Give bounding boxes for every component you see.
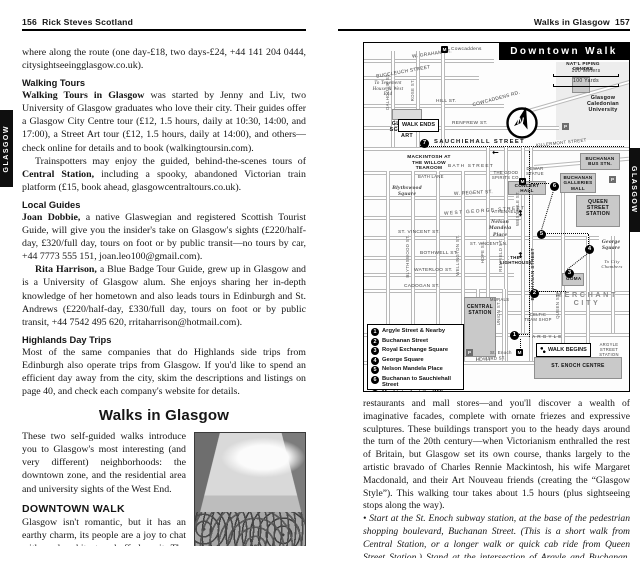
local-guides-heading: Local Guides xyxy=(22,200,306,210)
legend-item: 3Royal Exchange Square xyxy=(371,347,460,355)
label-wellington-st: WELLINGTON ST. xyxy=(455,235,460,276)
buchanan-street-metro-icon: M xyxy=(519,178,526,185)
left-page: 156 Rick Steves Scotland GLASGOW where a… xyxy=(0,0,320,568)
label-queen-street-station: QUEEN STREET STATION xyxy=(578,200,618,218)
route-george-nelson xyxy=(541,233,588,234)
street-photo xyxy=(194,432,306,546)
trainspotters-text-a: Trainspotters may enjoy the guided, behi… xyxy=(35,156,306,167)
central-station-bold: Central Station, xyxy=(22,169,94,180)
left-glasgow-tab: GLASGOW xyxy=(0,110,13,187)
right-text-column: restaurants and mall stores—and you'll d… xyxy=(363,398,630,558)
legend-item: 6Buchanan to Sauchiehall Street xyxy=(371,376,460,389)
label-rose: ROSE ST. xyxy=(410,79,415,101)
walking-tours-paragraph: Walking Tours in Glasgow was started by … xyxy=(22,89,306,154)
label-merchant-city: MERCHANT CITY xyxy=(550,291,624,308)
label-blythswood-square: Blythswood Square xyxy=(388,185,426,198)
legend-number: 2 xyxy=(371,338,379,346)
label-dewar-statue: DEWAR STATUE xyxy=(522,167,548,177)
left-page-header: 156 Rick Steves Scotland xyxy=(22,17,133,27)
stop-marker-1: 1 xyxy=(510,331,519,340)
legend-item: 5Nelson Mandela Place xyxy=(371,366,460,374)
right-body-paragraph: restaurants and mall stores—and you'll d… xyxy=(363,398,630,513)
right-page-number: 157 xyxy=(615,17,630,27)
label-buchanan-bus: BUCHANAN BUS STN. xyxy=(581,156,619,167)
right-header-rule xyxy=(338,29,630,31)
left-text-column: where along the route (one day-£18, two … xyxy=(22,46,306,546)
compass-n-letter: N xyxy=(517,116,524,127)
cowcaddens-metro-icon: M xyxy=(441,46,448,53)
book-spread: { "left_page": { "page_number": "156", "… xyxy=(0,0,640,568)
label-willow-tearoom: MACKINTOSH AT THE WILLOW TEAROOM xyxy=(406,155,452,172)
legend-label: Nelson Mandela Place xyxy=(382,366,443,372)
stop-marker-5: 5 xyxy=(537,230,546,239)
walking-tours-heading: Walking Tours xyxy=(22,78,306,88)
walking-tours-lead: Walking Tours in Glasgow xyxy=(22,90,144,101)
label-cowcaddens-station: Cowcaddens xyxy=(451,47,482,52)
trainspotters-paragraph: Trainspotters may enjoy the guided, behi… xyxy=(22,155,306,194)
label-city-chambers: To City Chambers xyxy=(598,259,626,270)
scale-meters-bar xyxy=(553,74,619,77)
legend-label: Argyle Street & Nearby xyxy=(382,328,445,334)
route-direction-arrow-vertical: ↕ xyxy=(517,209,524,218)
label-argyle: ARGYLE xyxy=(532,335,563,340)
label-celtic-shop: CELTIC TEAM SHOP xyxy=(524,313,552,323)
label-cadogan: CADOGAN ST. xyxy=(404,284,440,289)
label-st-enoch-station: St. Enoch xyxy=(490,350,512,355)
legend-item: 4George Square xyxy=(371,357,460,365)
scale-yards-bar xyxy=(553,84,619,87)
label-hope: HOPE ST. xyxy=(480,241,485,263)
legend-number: 1 xyxy=(371,328,379,336)
stop-marker-4: 4 xyxy=(585,245,594,254)
label-blythswood-st: BLYTHSWOOD ST. xyxy=(405,235,410,278)
footprints-icon xyxy=(540,346,546,354)
map-scale: 100 Meters 100 Yards xyxy=(549,68,623,88)
stop-marker-3: 3 xyxy=(565,269,574,278)
label-waterloo: WATERLOO ST. xyxy=(414,268,453,273)
street-line xyxy=(364,289,504,293)
label-caledonian-university: Glasgow Caledonian University xyxy=(578,95,628,114)
legend-label: Royal Exchange Square xyxy=(382,347,448,353)
st-enoch-metro-icon: M xyxy=(516,349,523,356)
stop-marker-2: 2 xyxy=(530,289,539,298)
joan-lead: Joan Dobbie, xyxy=(22,212,80,223)
legend-label: Buchanan Street xyxy=(382,338,428,344)
route-direction-arrow-vertical-2: ↕ xyxy=(517,251,524,260)
map-title: Downtown Walk xyxy=(499,43,629,60)
legend-label: George Square xyxy=(382,357,424,363)
stop-marker-7: 7 xyxy=(420,139,429,148)
walk-ends-box: WALK ENDS xyxy=(398,119,439,132)
label-nelson-mandela: Nelson Mandela Place xyxy=(482,219,518,238)
left-page-number: 156 xyxy=(22,17,37,27)
label-hill-st: HILL ST. xyxy=(436,99,457,104)
legend-number: 6 xyxy=(371,376,379,384)
legend-number: 4 xyxy=(371,357,379,365)
right-header-title: Walks in Glasgow xyxy=(534,17,610,27)
label-dalhousie: DALHOUSIE ST. xyxy=(385,73,390,110)
map-legend: 1Argyle Street & Nearby 2Buchanan Street… xyxy=(367,324,464,390)
label-renfrew-st: RENFREW ST. xyxy=(452,121,488,126)
rita-lead: Rita Harrison, xyxy=(35,264,97,275)
parking-icon: P xyxy=(609,176,616,183)
left-header-rule xyxy=(22,29,306,31)
book-title: Rick Steves Scotland xyxy=(42,17,133,27)
label-bath-street: BATH STREET xyxy=(448,164,494,169)
route-buchanan xyxy=(529,151,530,337)
label-union-st: UNION ST. xyxy=(496,301,501,325)
legend-number: 3 xyxy=(371,347,379,355)
photo-crowd xyxy=(195,512,305,546)
left-tab-label: GLASGOW xyxy=(3,125,10,172)
label-bath-lane: BATH LANE xyxy=(418,174,444,179)
joan-paragraph: Joan Dobbie, a native Glaswegian and reg… xyxy=(22,211,306,263)
label-buchanan-galleries: BUCHANAN GALLERIES MALL xyxy=(561,175,595,191)
label-central-station: CENTRAL STATION xyxy=(465,305,495,317)
compass-icon: N xyxy=(504,105,540,141)
legend-label: Buchanan to Sauchiehall Street xyxy=(382,376,460,389)
legend-number: 5 xyxy=(371,366,379,374)
right-tab-label: GLASGOW xyxy=(630,166,637,213)
highlands-paragraph: Most of the same companies that do Highl… xyxy=(22,346,306,398)
walk-begins-box: WALK BEGINS xyxy=(536,343,591,357)
label-george-square: George Square xyxy=(595,239,627,252)
right-page-header: Walks in Glasgow 157 xyxy=(534,17,630,27)
route-sauchiehall xyxy=(420,146,624,147)
intro-paragraph: where along the route (one day-£18, two … xyxy=(22,46,306,72)
walks-intro-block: These two self-guided walks introduce yo… xyxy=(22,430,306,546)
legend-number: 7 xyxy=(371,390,379,392)
walks-in-glasgow-heading: Walks in Glasgow xyxy=(22,407,306,424)
stop-marker-6: 6 xyxy=(550,182,559,191)
label-st-enoch-centre: ST. ENOCH CENTRE xyxy=(540,364,616,370)
highlands-heading: Highlands Day Trips xyxy=(22,335,306,345)
label-queen-st: QUEEN ST. xyxy=(555,293,560,319)
walk-ends-label: WALK ENDS xyxy=(402,122,435,129)
downtown-walk-map: Downtown Walk 100 Meters 100 Yards N ← ↕… xyxy=(363,42,630,392)
parking-icon: P xyxy=(562,123,569,130)
start-directions-paragraph: • Start at the St. Enoch subway station,… xyxy=(363,513,630,558)
label-renfield: RENFIELD ST. xyxy=(498,239,503,272)
parking-icon: P xyxy=(466,349,473,356)
label-argyle-street-station: ARGYLE STREET STATION xyxy=(594,343,624,357)
rita-paragraph: Rita Harrison, a Blue Badge Tour Guide, … xyxy=(22,263,306,328)
legend-label: Mackintosh at the Willow Tearoom xyxy=(382,390,460,392)
legend-item: 7Mackintosh at the Willow Tearoom xyxy=(371,390,460,392)
label-bothwell: BOTHWELL ST. xyxy=(420,251,458,256)
legend-item: 2Buchanan Street xyxy=(371,338,460,346)
label-lighthouse: THE LIGHTHOUSE xyxy=(500,255,530,265)
route-direction-arrow-west: ← xyxy=(492,148,499,157)
walk-begins-label: WALK BEGINS xyxy=(548,347,587,354)
street-line xyxy=(364,59,494,63)
legend-item: 1Argyle Street & Nearby xyxy=(371,328,460,336)
route-nelson-up xyxy=(540,192,554,233)
